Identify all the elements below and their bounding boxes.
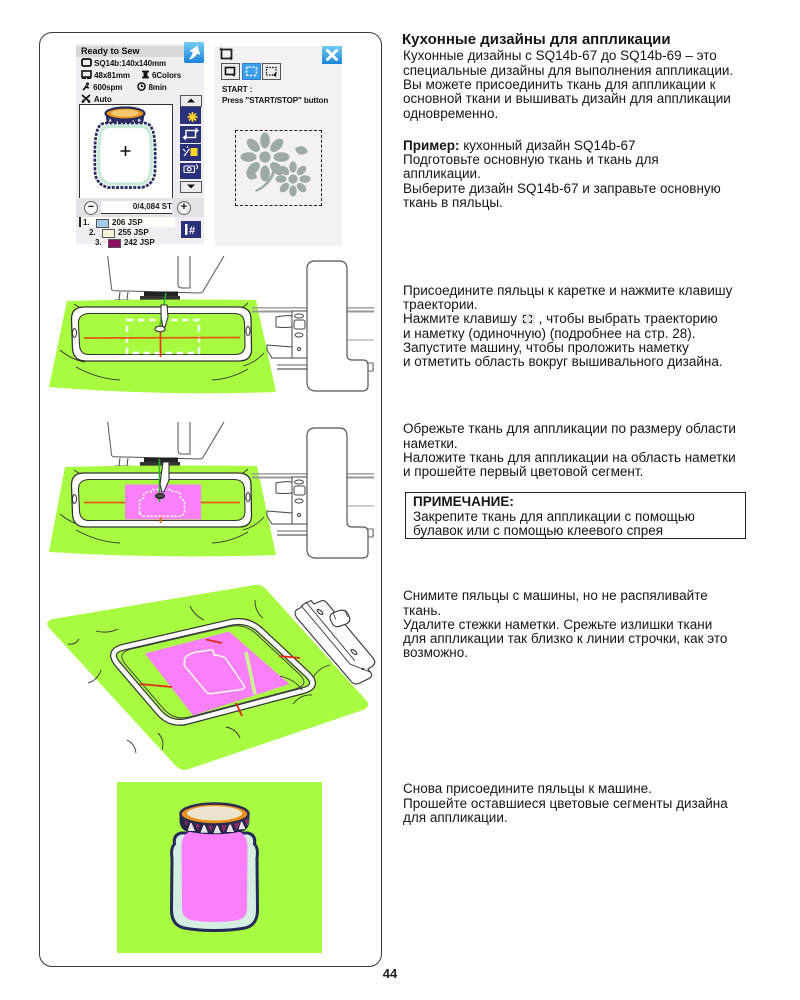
svg-text:#: # [189,225,195,237]
